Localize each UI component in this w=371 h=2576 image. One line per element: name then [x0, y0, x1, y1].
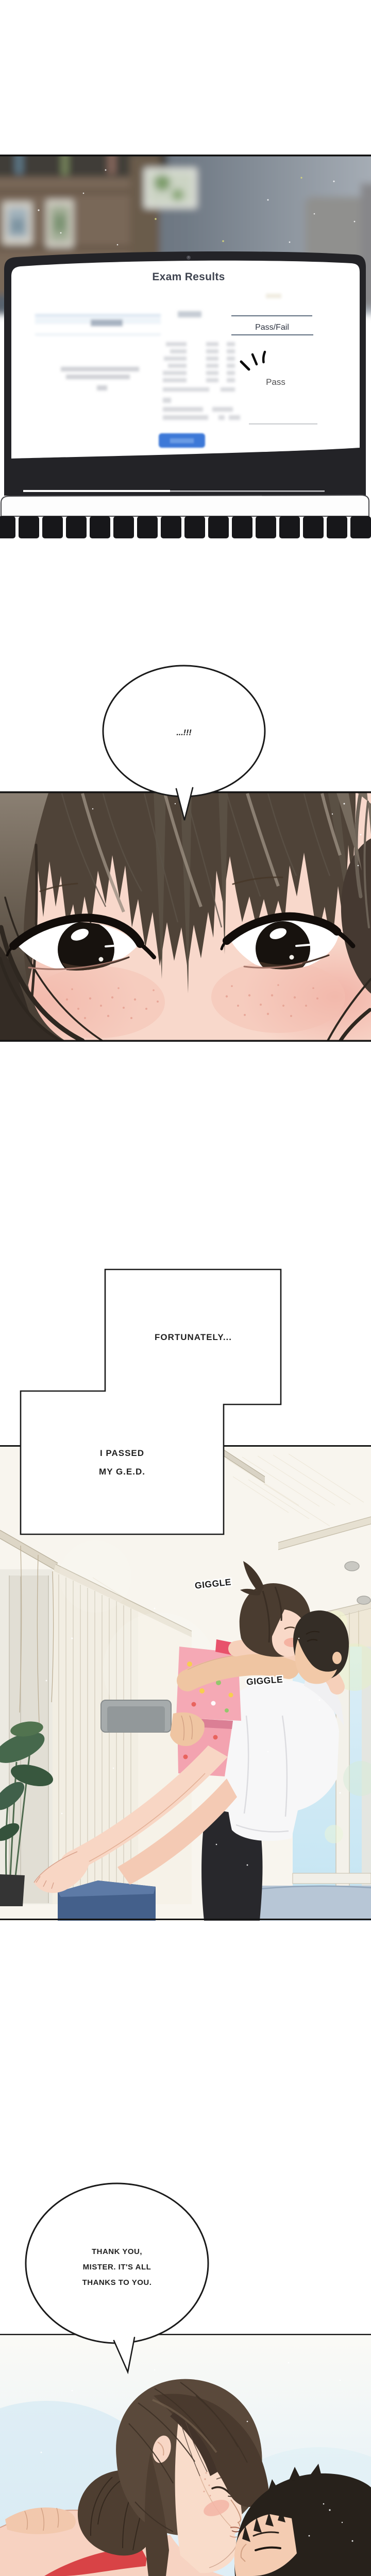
svg-text:MY G.E.D.: MY G.E.D.: [99, 1467, 145, 1477]
svg-text:Exam Results: Exam Results: [152, 271, 225, 283]
svg-text:I PASSED: I PASSED: [100, 1448, 144, 1458]
svg-text:Pass: Pass: [266, 377, 285, 387]
svg-text:FORTUNATELY...: FORTUNATELY...: [155, 1332, 232, 1342]
svg-text:THANK YOU,: THANK YOU,: [92, 2247, 142, 2256]
svg-text:...!!!: ...!!!: [176, 728, 192, 737]
svg-text:MISTER. IT'S ALL: MISTER. IT'S ALL: [83, 2263, 151, 2272]
svg-text:Pass/Fail: Pass/Fail: [255, 323, 289, 332]
svg-text:THANKS TO YOU.: THANKS TO YOU.: [82, 2278, 152, 2287]
